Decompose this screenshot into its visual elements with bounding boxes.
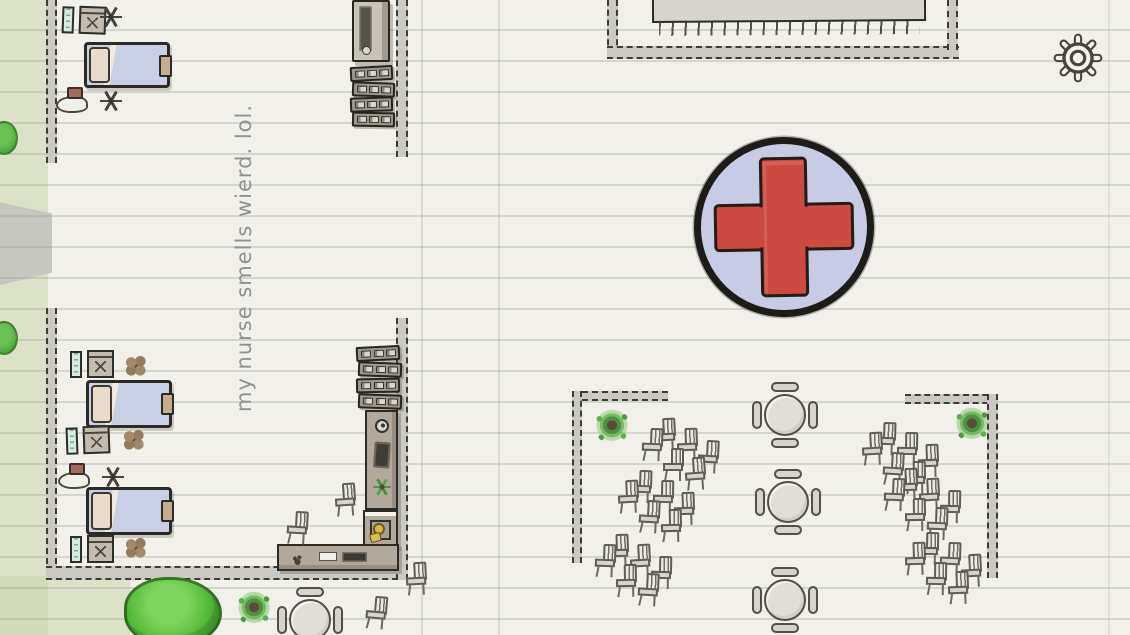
hospital-bed[interactable] [86, 380, 172, 428]
locker-box [369, 86, 379, 93]
plant-scribble [373, 478, 391, 496]
waiting-chair[interactable] [663, 448, 685, 481]
round-table[interactable] [278, 588, 342, 635]
bench [774, 525, 802, 535]
chair-seat [661, 524, 681, 532]
locker-box [388, 398, 398, 405]
desk-chair[interactable] [286, 510, 310, 544]
cabinet-door [359, 6, 372, 51]
locker-box [355, 70, 365, 77]
supply-cabinet[interactable] [352, 0, 390, 62]
bench [752, 586, 762, 614]
bench [277, 606, 287, 634]
locker-box [361, 350, 371, 358]
table-top [764, 579, 806, 621]
map-layer [0, 0, 1130, 635]
iv-pump[interactable] [56, 86, 122, 116]
locker-box [357, 85, 367, 92]
bedside-table [161, 393, 174, 415]
waiting-chair[interactable] [616, 564, 639, 597]
ledger [373, 441, 391, 468]
hospital-bed[interactable] [84, 42, 170, 88]
bush [0, 121, 18, 155]
hospital-bed[interactable] [86, 487, 172, 535]
waiting-chair[interactable] [947, 571, 970, 605]
chair-seat [287, 525, 307, 534]
locker-shelf[interactable] [356, 378, 400, 394]
vitals-monitor[interactable] [65, 425, 112, 457]
bench [752, 401, 762, 429]
locker-box [363, 397, 373, 404]
round-table[interactable] [753, 383, 817, 447]
bench [771, 567, 799, 577]
settings-button[interactable] [1051, 31, 1105, 85]
wall [905, 394, 998, 404]
waiting-chair[interactable] [641, 428, 664, 462]
monitor-screen [66, 427, 79, 454]
bench [333, 606, 343, 634]
locker-box [373, 382, 383, 389]
chair-seat [639, 514, 659, 523]
bed-pillow [91, 385, 112, 423]
bush [0, 321, 18, 355]
handwritten-note: my nurse smells wierd. lol. [232, 72, 256, 412]
table-top [767, 481, 809, 523]
game-map: my nurse smells wierd. lol. [0, 0, 1130, 635]
chair-seat [638, 587, 658, 596]
locker-box [357, 116, 367, 123]
iv-pole-icon [100, 90, 122, 112]
tree [124, 577, 222, 635]
chair-seat [905, 513, 925, 521]
bed-pillow [91, 492, 112, 530]
locker-shelf[interactable] [350, 96, 393, 112]
locker-box [375, 398, 385, 405]
waiting-chair[interactable] [905, 498, 928, 531]
bench [771, 623, 799, 633]
fringed-rug [652, 0, 926, 23]
waiting-chair[interactable] [904, 542, 927, 576]
wall [607, 46, 959, 59]
chair-seat [616, 579, 636, 587]
monitor-screen [62, 6, 75, 33]
bench [296, 587, 324, 597]
locker-shelf[interactable] [352, 112, 395, 128]
waiting-chair[interactable] [883, 478, 906, 512]
gear-icon [1051, 31, 1105, 85]
reception-counter-front[interactable] [277, 544, 399, 571]
iv-pole-icon [102, 466, 124, 488]
waiting-chair[interactable] [594, 544, 617, 578]
pump-box [69, 463, 85, 475]
potted-plant [594, 408, 630, 444]
monitor-box [82, 425, 110, 454]
monitor-box [87, 535, 114, 563]
chair-seat [905, 557, 925, 566]
locker-box [388, 366, 398, 373]
chair[interactable] [365, 595, 390, 630]
chair-seat [862, 447, 882, 456]
vitals-monitor[interactable] [70, 350, 116, 380]
bench [808, 401, 818, 429]
locker-box [375, 366, 385, 373]
dried-flower [122, 428, 146, 452]
chair-seat [948, 586, 968, 595]
monitor-box [87, 350, 114, 378]
locker-box [379, 69, 389, 76]
vitals-monitor[interactable] [70, 535, 116, 565]
bedside-table [159, 55, 172, 77]
waiting-chair[interactable] [861, 431, 885, 465]
wall [947, 0, 958, 50]
potted-plant [236, 590, 272, 626]
reception-counter-corner[interactable] [363, 510, 398, 548]
potted-plant [954, 406, 990, 442]
dried-flower [124, 536, 148, 560]
bedside-table [161, 500, 174, 522]
locker-box [381, 86, 391, 93]
locker-box [367, 70, 377, 77]
locker-box [363, 365, 373, 372]
cabinet-emblem [362, 46, 371, 55]
locker-shelf[interactable] [358, 393, 402, 410]
locker-box [386, 382, 396, 389]
jar [373, 523, 385, 535]
chair-seat [365, 610, 386, 620]
bench [771, 382, 799, 392]
wall [572, 391, 582, 563]
locker-box [379, 100, 389, 107]
wall [46, 308, 57, 574]
chair-seat [595, 559, 615, 568]
bed-pillow [89, 47, 110, 83]
chair[interactable] [405, 561, 429, 595]
iv-pole-icon [100, 6, 122, 28]
cross-fill [763, 161, 805, 294]
waiting-chair[interactable] [637, 572, 661, 606]
bench [808, 586, 818, 614]
chair-seat [926, 577, 946, 585]
monitor-screen [70, 351, 82, 378]
locker-shelf[interactable] [350, 65, 394, 82]
waiting-chair[interactable] [661, 509, 684, 542]
chair-seat [685, 471, 706, 480]
chair-seat [335, 497, 356, 506]
locker-box [386, 349, 396, 357]
round-table[interactable] [753, 568, 817, 632]
clock-scribble [375, 419, 389, 433]
monitor-screen [70, 536, 82, 563]
bench [755, 488, 765, 516]
chair-seat [642, 443, 662, 452]
waiting-chair[interactable] [926, 562, 949, 595]
chair-seat [618, 495, 638, 504]
reception-counter[interactable] [365, 410, 398, 510]
iv-stand[interactable] [100, 6, 124, 32]
desk-chair[interactable] [334, 482, 358, 516]
locker-shelf[interactable] [352, 81, 395, 97]
wall [572, 391, 668, 401]
chair-seat [663, 463, 683, 471]
paper-sheet [319, 552, 337, 561]
waiting-chair[interactable] [617, 479, 641, 513]
waiting-chair[interactable] [638, 499, 662, 533]
table-top [289, 599, 331, 635]
locker-box [361, 382, 371, 389]
bench [774, 469, 802, 479]
pump-box [67, 87, 83, 99]
scribble [291, 554, 304, 565]
table-top [764, 394, 806, 436]
chair-seat [927, 522, 947, 531]
waiting-chair[interactable] [684, 456, 708, 490]
locker-shelf[interactable] [356, 345, 401, 362]
locker-box [369, 116, 379, 123]
bench [811, 488, 821, 516]
locker-box [367, 101, 377, 108]
locker-box [355, 101, 365, 108]
bench [771, 438, 799, 448]
locker-box [381, 116, 391, 123]
wall [46, 0, 57, 163]
tray [342, 552, 367, 562]
wall [396, 0, 408, 157]
chair-seat [884, 493, 904, 502]
locker-box [373, 350, 383, 358]
locker-shelf[interactable] [358, 361, 402, 378]
chair-seat [406, 577, 426, 586]
round-table[interactable] [756, 470, 820, 534]
dried-flower [124, 354, 148, 378]
